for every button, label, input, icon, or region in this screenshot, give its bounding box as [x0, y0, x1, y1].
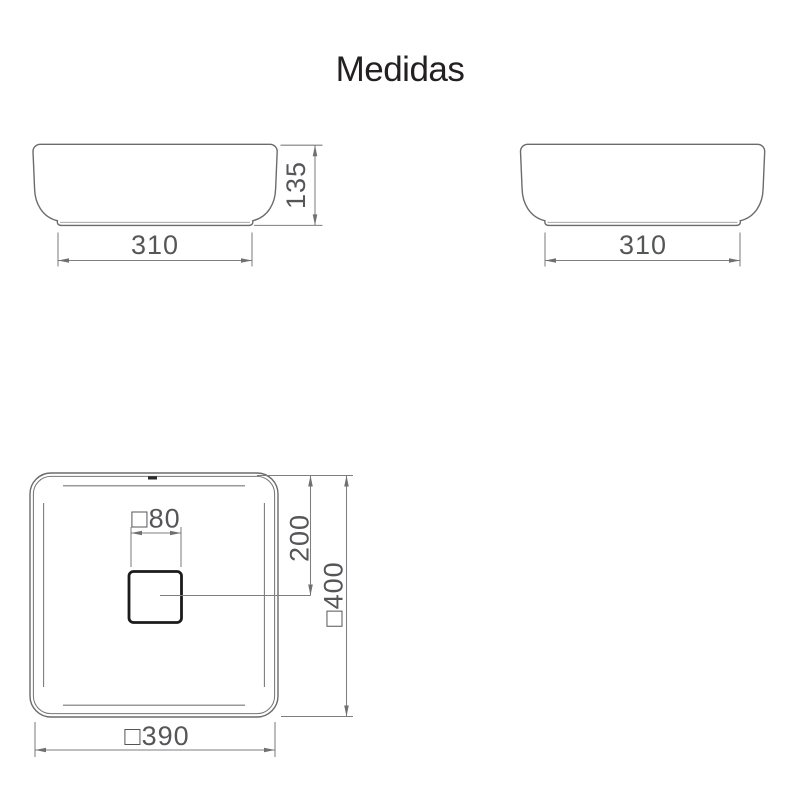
arrow-up-icon	[308, 476, 313, 487]
drain-hole	[129, 572, 182, 623]
arrow-up-icon	[344, 476, 349, 487]
drain-size-label: □80	[131, 504, 180, 534]
side-view-width-dimension: 310	[545, 230, 740, 267]
overall-depth-label: □400	[319, 561, 349, 626]
front-view-outline	[33, 144, 277, 225]
arrow-left-icon	[545, 258, 556, 263]
width-dimension-label: 310	[131, 230, 179, 260]
arrow-down-icon	[313, 214, 318, 225]
arrow-up-icon	[313, 145, 318, 156]
arrow-right-icon	[241, 258, 252, 263]
overall-width-dimension: □390	[35, 721, 275, 757]
arrow-right-icon	[729, 258, 740, 263]
drain-offset-label: 200	[285, 514, 315, 562]
side-view-outline	[521, 144, 765, 225]
height-dimension-label: 135	[281, 161, 311, 209]
arrow-down-icon	[308, 585, 313, 596]
front-view-width-dimension: 310	[58, 230, 252, 267]
drawing-canvas: Medidas 135 310	[0, 0, 800, 800]
front-view: 135 310	[33, 144, 323, 266]
side-view: 310	[521, 144, 765, 266]
drain-size-dimension: □80	[131, 504, 181, 568]
arrow-right-icon	[264, 748, 275, 753]
overall-width-label: □390	[124, 721, 189, 751]
arrow-left-icon	[35, 748, 46, 753]
top-view: □80 200 □400	[30, 473, 353, 757]
arrow-left-icon	[58, 258, 69, 263]
technical-drawing: 135 310	[0, 0, 800, 800]
rim-center-mark	[148, 476, 157, 479]
width-dimension-label: 310	[619, 230, 667, 260]
arrow-down-icon	[344, 706, 349, 717]
